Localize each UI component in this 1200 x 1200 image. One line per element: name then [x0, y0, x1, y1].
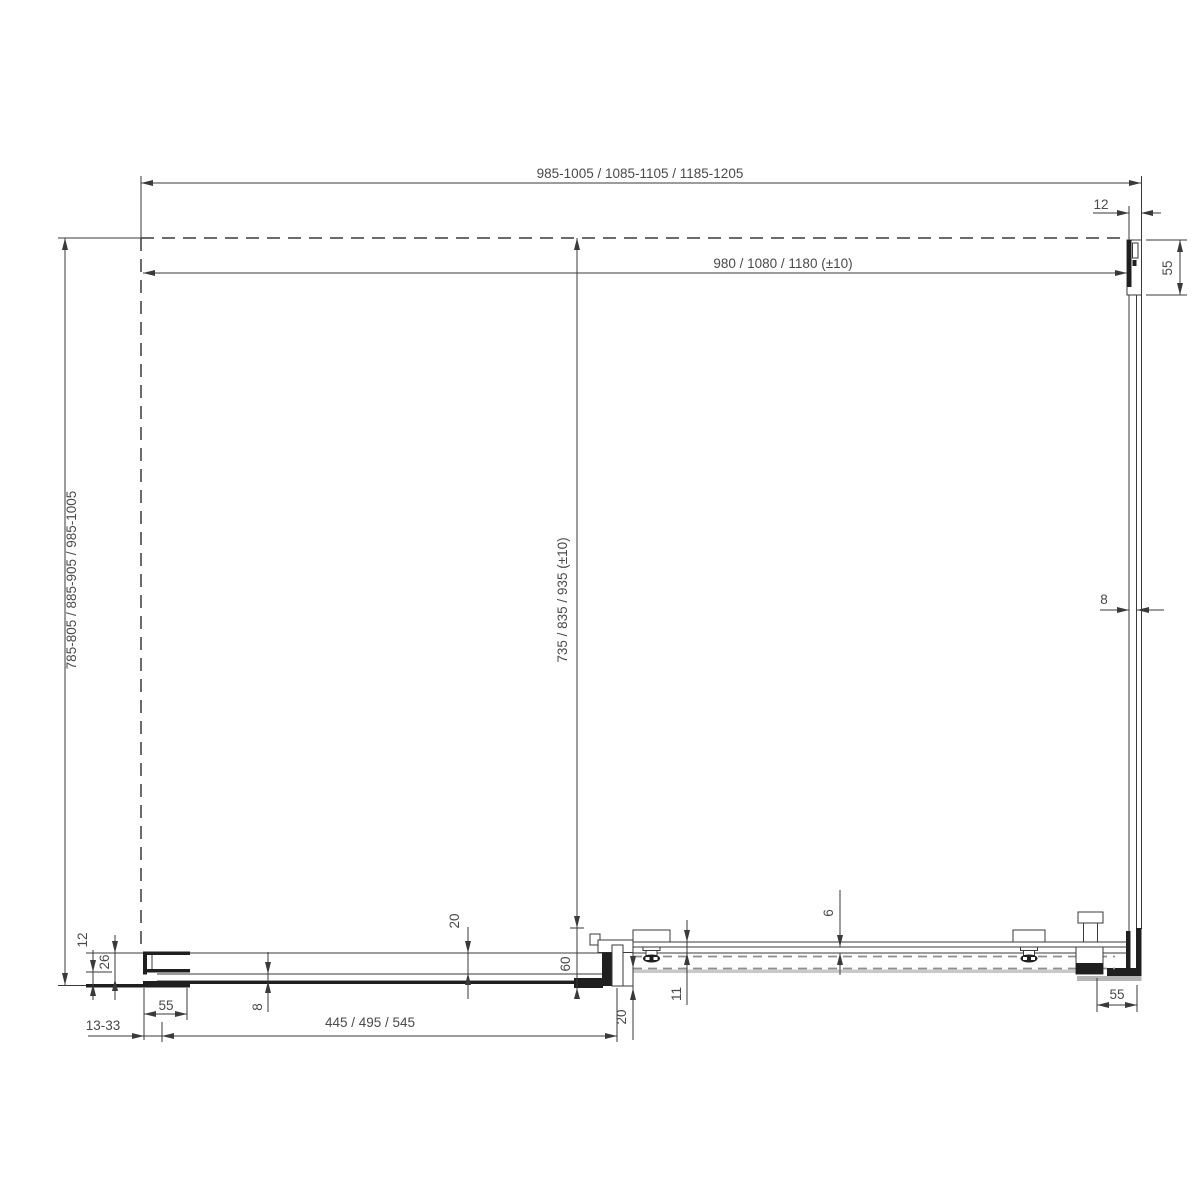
fixed-glass-panel — [143, 974, 602, 984]
dim-unit-depth-label: 60 — [558, 956, 573, 971]
dim-wall-profile-width-label: 12 — [1093, 197, 1108, 212]
dim-rail-inset-label: 6 — [821, 909, 836, 917]
dim-left-clamp-width-label: 55 — [158, 998, 173, 1013]
dim-inner-width-label: 980 / 1080 / 1180 (±10) — [713, 256, 852, 271]
dimension-labels: 985-1005 / 1085-1105 / 1185-1205 980 / 1… — [64, 166, 1175, 1033]
dim-right-clamp-width-label: 55 — [1109, 987, 1124, 1002]
technical-drawing: 985-1005 / 1085-1105 / 1185-1205 980 / 1… — [0, 0, 1200, 1200]
right-fixed-panel — [1077, 176, 1142, 981]
technical-drawing-page: 985-1005 / 1085-1105 / 1185-1205 980 / 1… — [0, 0, 1200, 1200]
wall-dashed-lines — [141, 238, 1123, 945]
door-edge-profile — [574, 934, 633, 988]
dim-outer-height-label: 785-805 / 885-905 / 985-1005 — [64, 491, 79, 670]
dim-fixed-gap-label: 20 — [447, 913, 462, 928]
dim-side-glass-label: 8 — [1100, 592, 1108, 607]
bottom-door-unit — [86, 912, 1127, 988]
dim-outer-width-label: 985-1005 / 1085-1105 / 1185-1205 — [537, 166, 744, 181]
dim-rail-offset-label: 11 — [669, 987, 684, 1001]
door-right-clamp — [1076, 947, 1103, 974]
roller-bracket-left — [633, 930, 670, 963]
sliding-door-glass — [618, 957, 1115, 974]
dim-bottom-left-12-label: 12 — [75, 932, 90, 947]
dim-fixed-panel-width-label: 445 / 495 / 545 — [325, 1015, 415, 1030]
door-handle — [1078, 912, 1103, 942]
dim-wall-profile-depth-label: 55 — [1160, 260, 1175, 275]
roller-bracket-right — [1013, 930, 1045, 963]
dim-door-overlap-label: 20 — [614, 1009, 629, 1024]
dim-adjustment-range-label: 13-33 — [86, 1018, 121, 1033]
dim-inner-height-label: 735 / 835 / 935 (±10) — [555, 537, 570, 662]
dimension-lines — [58, 176, 1187, 1042]
dim-bottom-glass-label: 8 — [250, 1003, 265, 1011]
dim-bottom-left-26-label: 26 — [97, 954, 112, 969]
wall-profile-top-right — [1127, 240, 1142, 295]
